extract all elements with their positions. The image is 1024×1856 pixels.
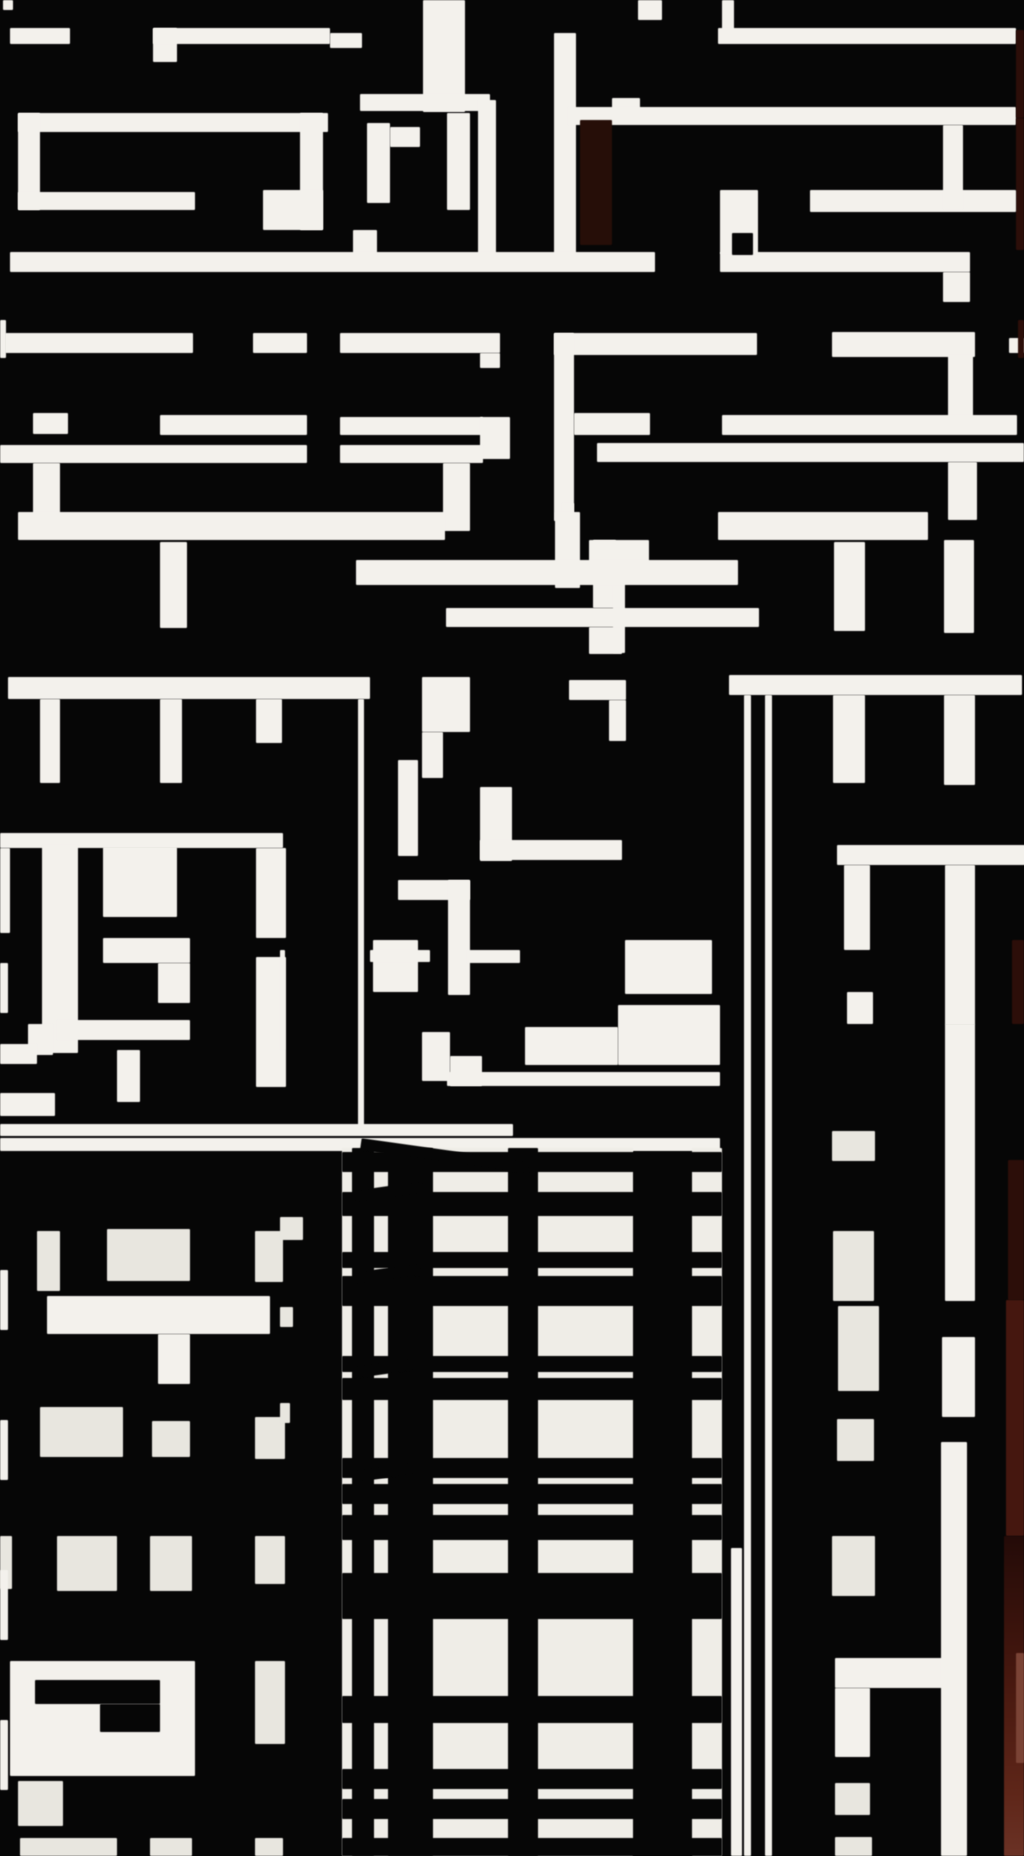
- art-rect: [152, 1421, 190, 1457]
- art-rect: [342, 1484, 722, 1504]
- art-rect: [835, 1837, 872, 1856]
- art-rect: [47, 1296, 270, 1334]
- art-rect: [280, 950, 285, 1050]
- art-rect: [280, 1217, 303, 1240]
- art-rect: [342, 1573, 722, 1619]
- art-rect: [447, 1072, 720, 1086]
- art-rect: [3, 0, 13, 10]
- art-rect: [837, 1419, 874, 1461]
- art-rect: [609, 700, 626, 741]
- art-rect: [835, 1783, 870, 1815]
- art-rect: [330, 33, 362, 48]
- art-rect: [0, 1093, 55, 1116]
- art-rect: [373, 940, 418, 992]
- art-rect: [255, 1536, 285, 1584]
- art-rect: [525, 1027, 618, 1065]
- art-rect: [833, 695, 865, 783]
- art-rect: [1018, 320, 1024, 358]
- art-rect: [0, 1270, 8, 1330]
- art-rect: [554, 333, 757, 355]
- art-rect: [480, 353, 500, 368]
- art-rect: [10, 28, 70, 44]
- art-rect: [837, 845, 1024, 865]
- art-rect: [765, 695, 772, 1856]
- art-rect: [342, 1838, 722, 1856]
- art-rect: [280, 1403, 290, 1423]
- art-rect: [554, 333, 574, 521]
- art-rect: [943, 272, 970, 302]
- art-rect: [0, 1570, 8, 1640]
- art-rect: [0, 1420, 8, 1480]
- art-rect: [942, 1337, 975, 1417]
- art-rect: [57, 1020, 190, 1040]
- art-rect: [37, 1231, 60, 1291]
- art-rect: [342, 1769, 722, 1789]
- art-rect: [18, 192, 195, 210]
- art-rect: [342, 1799, 722, 1819]
- art-rect: [40, 699, 60, 783]
- art-rect: [720, 252, 970, 272]
- art-rect: [255, 1661, 285, 1744]
- art-rect: [280, 1307, 293, 1327]
- art-rect: [447, 113, 470, 210]
- abstract-collage-canvas: [0, 0, 1024, 1856]
- art-rect: [835, 1688, 870, 1757]
- art-rect: [0, 445, 307, 463]
- art-rect: [732, 233, 753, 255]
- art-rect: [160, 542, 187, 628]
- art-rect: [340, 333, 500, 353]
- art-rect: [1016, 118, 1024, 250]
- art-rect: [478, 100, 496, 260]
- art-rect: [744, 695, 751, 1856]
- art-rect: [580, 120, 612, 245]
- art-rect: [160, 699, 182, 783]
- art-rect: [150, 1838, 192, 1856]
- art-rect: [945, 1024, 975, 1301]
- art-rect: [554, 33, 576, 255]
- art-rect: [718, 28, 1016, 44]
- art-rect: [446, 608, 759, 627]
- art-rect: [103, 847, 177, 917]
- art-rect: [18, 1781, 63, 1826]
- art-rect: [1008, 1160, 1024, 1300]
- art-rect: [40, 1407, 123, 1457]
- art-rect: [8, 677, 370, 699]
- art-rect: [944, 540, 974, 633]
- art-rect: [342, 1696, 722, 1723]
- art-rect: [443, 463, 470, 531]
- art-rect: [342, 1276, 722, 1306]
- art-rect: [370, 950, 430, 962]
- art-rect: [255, 1231, 283, 1282]
- art-rect: [832, 1131, 875, 1161]
- art-rect: [5, 333, 193, 353]
- art-rect: [847, 992, 873, 1024]
- art-rect: [353, 230, 377, 254]
- art-rect: [568, 107, 1016, 125]
- art-rect: [597, 443, 1024, 462]
- art-rect: [342, 1515, 722, 1540]
- art-rect: [150, 1536, 192, 1591]
- art-rect: [618, 1005, 720, 1065]
- art-rect: [467, 950, 520, 963]
- art-rect: [722, 415, 1017, 435]
- art-rect: [398, 760, 418, 856]
- art-rect: [941, 1442, 967, 1856]
- art-rect: [569, 680, 626, 700]
- art-rect: [0, 1720, 8, 1790]
- art-rect: [35, 1680, 160, 1704]
- art-rect: [263, 190, 323, 230]
- art-rect: [718, 512, 928, 540]
- art-rect: [256, 848, 286, 938]
- art-rect: [1006, 1300, 1024, 1536]
- art-rect: [255, 1417, 285, 1459]
- art-rect: [480, 417, 510, 459]
- art-rect: [574, 413, 650, 435]
- art-rect: [20, 1838, 117, 1856]
- art-rect: [943, 125, 963, 209]
- art-rect: [731, 1548, 742, 1856]
- art-rect: [158, 963, 190, 1003]
- art-rect: [0, 848, 10, 933]
- art-rect: [589, 627, 622, 654]
- art-rect: [10, 252, 655, 272]
- art-rect: [944, 695, 975, 785]
- art-rect: [253, 333, 307, 353]
- art-rect: [340, 417, 483, 435]
- art-rect: [358, 699, 364, 1132]
- art-rect: [833, 1231, 874, 1301]
- art-rect: [33, 413, 68, 434]
- art-rect: [340, 445, 483, 463]
- art-rect: [448, 880, 470, 995]
- art-rect: [158, 1334, 190, 1384]
- art-rect: [844, 865, 870, 950]
- art-rect: [810, 190, 1016, 212]
- art-rect: [117, 1050, 140, 1102]
- art-rect: [948, 355, 973, 417]
- art-rect: [832, 332, 975, 357]
- art-rect: [18, 512, 445, 540]
- art-rect: [838, 1306, 879, 1391]
- art-rect: [160, 415, 307, 435]
- art-rect: [390, 127, 420, 147]
- art-rect: [0, 963, 8, 1013]
- art-rect: [625, 940, 712, 994]
- art-rect: [356, 560, 738, 585]
- art-rect: [1016, 1653, 1024, 1763]
- art-rect: [153, 28, 330, 44]
- art-rect: [1012, 940, 1024, 1024]
- art-rect: [729, 675, 1022, 695]
- art-rect: [834, 542, 865, 631]
- art-rect: [0, 1124, 513, 1136]
- art-rect: [422, 732, 443, 778]
- art-rect: [103, 938, 190, 963]
- art-rect: [107, 1229, 190, 1281]
- art-rect: [57, 1536, 117, 1591]
- art-rect: [945, 865, 975, 1025]
- art-rect: [342, 1378, 722, 1400]
- art-rect: [0, 1044, 37, 1064]
- art-rect: [835, 1658, 947, 1688]
- art-rect: [638, 0, 662, 20]
- art-rect: [367, 123, 390, 203]
- art-rect: [422, 677, 470, 732]
- art-rect: [450, 1056, 482, 1086]
- art-rect: [360, 94, 490, 111]
- art-rect: [255, 1838, 283, 1856]
- art-rect: [480, 840, 622, 860]
- art-rect: [18, 113, 328, 132]
- art-rect: [100, 1704, 160, 1732]
- art-rect: [422, 1032, 450, 1081]
- art-rect: [832, 1536, 875, 1596]
- art-rect: [948, 462, 977, 520]
- art-rect: [1016, 30, 1024, 118]
- art-rect: [256, 699, 282, 743]
